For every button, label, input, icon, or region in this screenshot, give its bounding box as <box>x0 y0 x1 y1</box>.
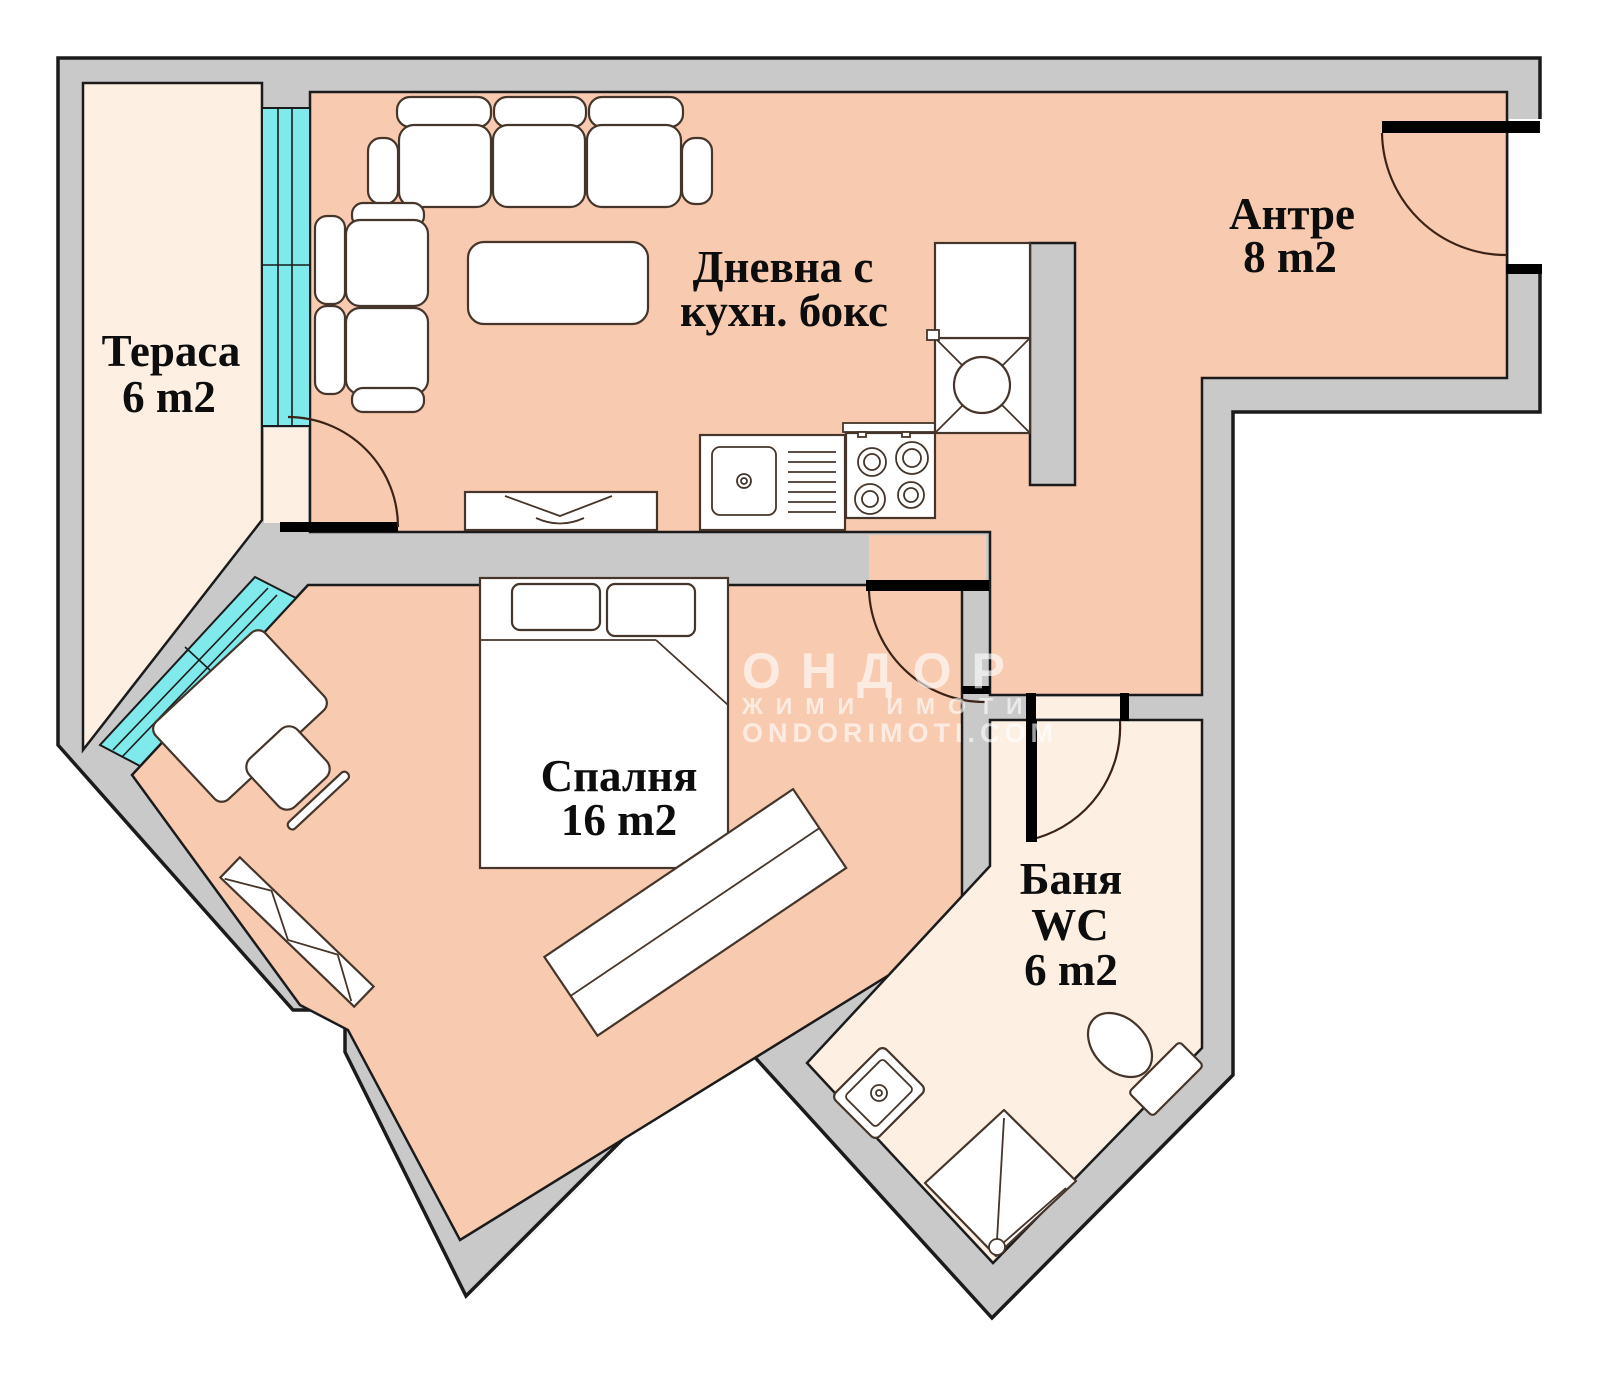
living-label-line2: кухн. бокс <box>680 286 888 336</box>
terrace-label: Тераса <box>102 326 241 376</box>
hall-area: 8 m2 <box>1243 232 1337 282</box>
bath-label-line2: WC <box>1031 900 1109 950</box>
living-label-line1: Дневна с <box>693 242 874 292</box>
floor-plan: Тераса 6 m2 Дневна с кухн. бокс Антре 8 … <box>0 0 1600 1378</box>
kitchen-sink-unit <box>700 435 845 530</box>
corner-sink-unit <box>935 338 1030 433</box>
watermark-line1: ОНДОР <box>742 643 1025 699</box>
stove <box>843 423 937 518</box>
bedroom-area: 16 m2 <box>561 795 677 845</box>
watermark: ОНДОР ЖИМИ ИМОТИ ONDORIMOTI.COM <box>741 643 1058 748</box>
floor-plan-page: Тераса 6 m2 Дневна с кухн. бокс Антре 8 … <box>0 0 1600 1378</box>
tv-cabinet <box>465 492 657 530</box>
bath-area: 6 m2 <box>1024 945 1118 995</box>
fridge <box>927 243 1030 340</box>
watermark-line2: ЖИМИ ИМОТИ <box>741 693 1036 719</box>
terrace-area: 6 m2 <box>122 372 216 422</box>
kitchen-partition-wall <box>1030 243 1075 485</box>
living-window <box>262 108 310 426</box>
sofa <box>368 97 712 207</box>
coffee-table <box>468 242 648 324</box>
bedroom-label: Спалня <box>541 751 698 801</box>
watermark-line3: ONDORIMOTI.COM <box>742 718 1058 748</box>
bath-label-line1: Баня <box>1020 854 1123 904</box>
armchair <box>315 203 428 306</box>
